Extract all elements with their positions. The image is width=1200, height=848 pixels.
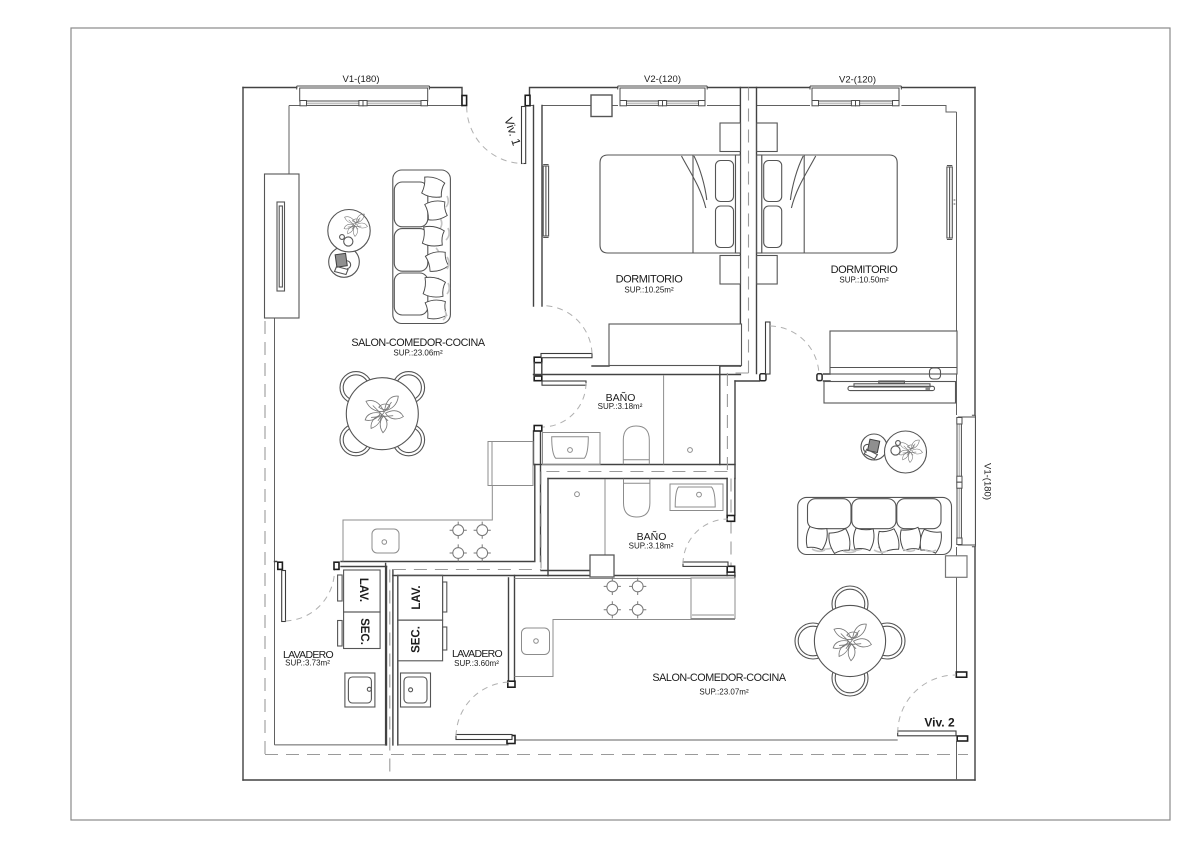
svg-text:SUP.:3.18m²: SUP.:3.18m² xyxy=(629,542,674,551)
svg-text:V2-(120): V2-(120) xyxy=(644,74,681,85)
svg-text:SUP.:3.60m²: SUP.:3.60m² xyxy=(454,659,499,668)
svg-text:SUP.:3.18m²: SUP.:3.18m² xyxy=(598,402,643,411)
svg-text:SUP.:3.73m²: SUP.:3.73m² xyxy=(285,659,330,668)
svg-text:V1-(180): V1-(180) xyxy=(343,74,380,85)
svg-text:SUP.:23.06m²: SUP.:23.06m² xyxy=(393,348,443,357)
svg-text:SUP.:10.25m²: SUP.:10.25m² xyxy=(624,286,674,295)
svg-text:Viv. 2: Viv. 2 xyxy=(924,716,955,730)
svg-text:SEC.: SEC. xyxy=(358,618,370,645)
svg-text:LAV.: LAV. xyxy=(357,578,369,602)
svg-text:LAV.: LAV. xyxy=(411,585,423,609)
svg-text:DORMITORIO: DORMITORIO xyxy=(831,264,899,276)
svg-text:SALON-COMEDOR-COCINA: SALON-COMEDOR-COCINA xyxy=(351,337,485,349)
svg-text:V2-(120): V2-(120) xyxy=(839,75,876,86)
svg-text:SEC.: SEC. xyxy=(411,626,423,653)
svg-text:SALON-COMEDOR-COCINA: SALON-COMEDOR-COCINA xyxy=(652,672,786,684)
svg-text:V1-(180): V1-(180) xyxy=(982,463,993,500)
svg-text:DORMITORIO: DORMITORIO xyxy=(616,274,684,286)
svg-text:SUP.:23.07m²: SUP.:23.07m² xyxy=(699,688,749,697)
svg-text:SUP.:10.50m²: SUP.:10.50m² xyxy=(839,276,889,285)
